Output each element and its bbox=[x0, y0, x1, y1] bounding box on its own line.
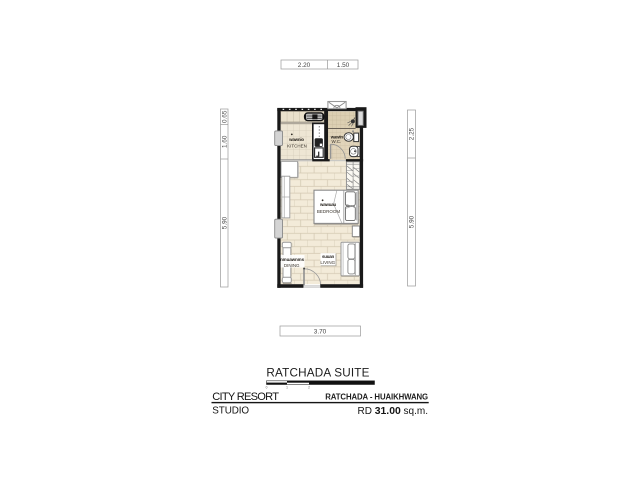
svg-text:W.C.: W.C. bbox=[332, 139, 342, 144]
svg-text:2: 2 bbox=[308, 386, 310, 390]
svg-text:2.20: 2.20 bbox=[298, 62, 311, 69]
svg-text:BEDROOM: BEDROOM bbox=[317, 209, 341, 214]
svg-text:1: 1 bbox=[286, 386, 288, 390]
svg-text:5.90: 5.90 bbox=[409, 215, 416, 228]
svg-text:KITCHEN: KITCHEN bbox=[287, 143, 307, 148]
svg-text:RATCHADA SUITE: RATCHADA SUITE bbox=[266, 366, 369, 379]
svg-text:CITY RESORT: CITY RESORT bbox=[212, 391, 279, 403]
svg-text:STUDIO: STUDIO bbox=[212, 406, 249, 417]
svg-text:DINING: DINING bbox=[284, 263, 300, 268]
svg-text:nmuawnms: nmuawnms bbox=[280, 257, 305, 262]
svg-text:RATCHADA - HUAIKHWANG: RATCHADA - HUAIKHWANG bbox=[325, 393, 428, 402]
svg-text:1.60: 1.60 bbox=[222, 135, 229, 148]
svg-text:5.90: 5.90 bbox=[222, 216, 229, 229]
svg-text:2.25: 2.25 bbox=[409, 127, 416, 140]
svg-text:wawuau: wawuau bbox=[319, 202, 336, 207]
svg-text:suuan: suuan bbox=[322, 254, 334, 259]
svg-text:3.70: 3.70 bbox=[314, 329, 327, 336]
svg-text:RD 31.00 sq.m.: RD 31.00 sq.m. bbox=[358, 406, 428, 417]
svg-text:1.50: 1.50 bbox=[337, 62, 350, 69]
svg-text:0.65: 0.65 bbox=[222, 110, 229, 123]
svg-text:LIVING: LIVING bbox=[320, 260, 335, 265]
svg-text:0: 0 bbox=[266, 386, 268, 390]
svg-text:wawnio: wawnio bbox=[288, 137, 304, 142]
